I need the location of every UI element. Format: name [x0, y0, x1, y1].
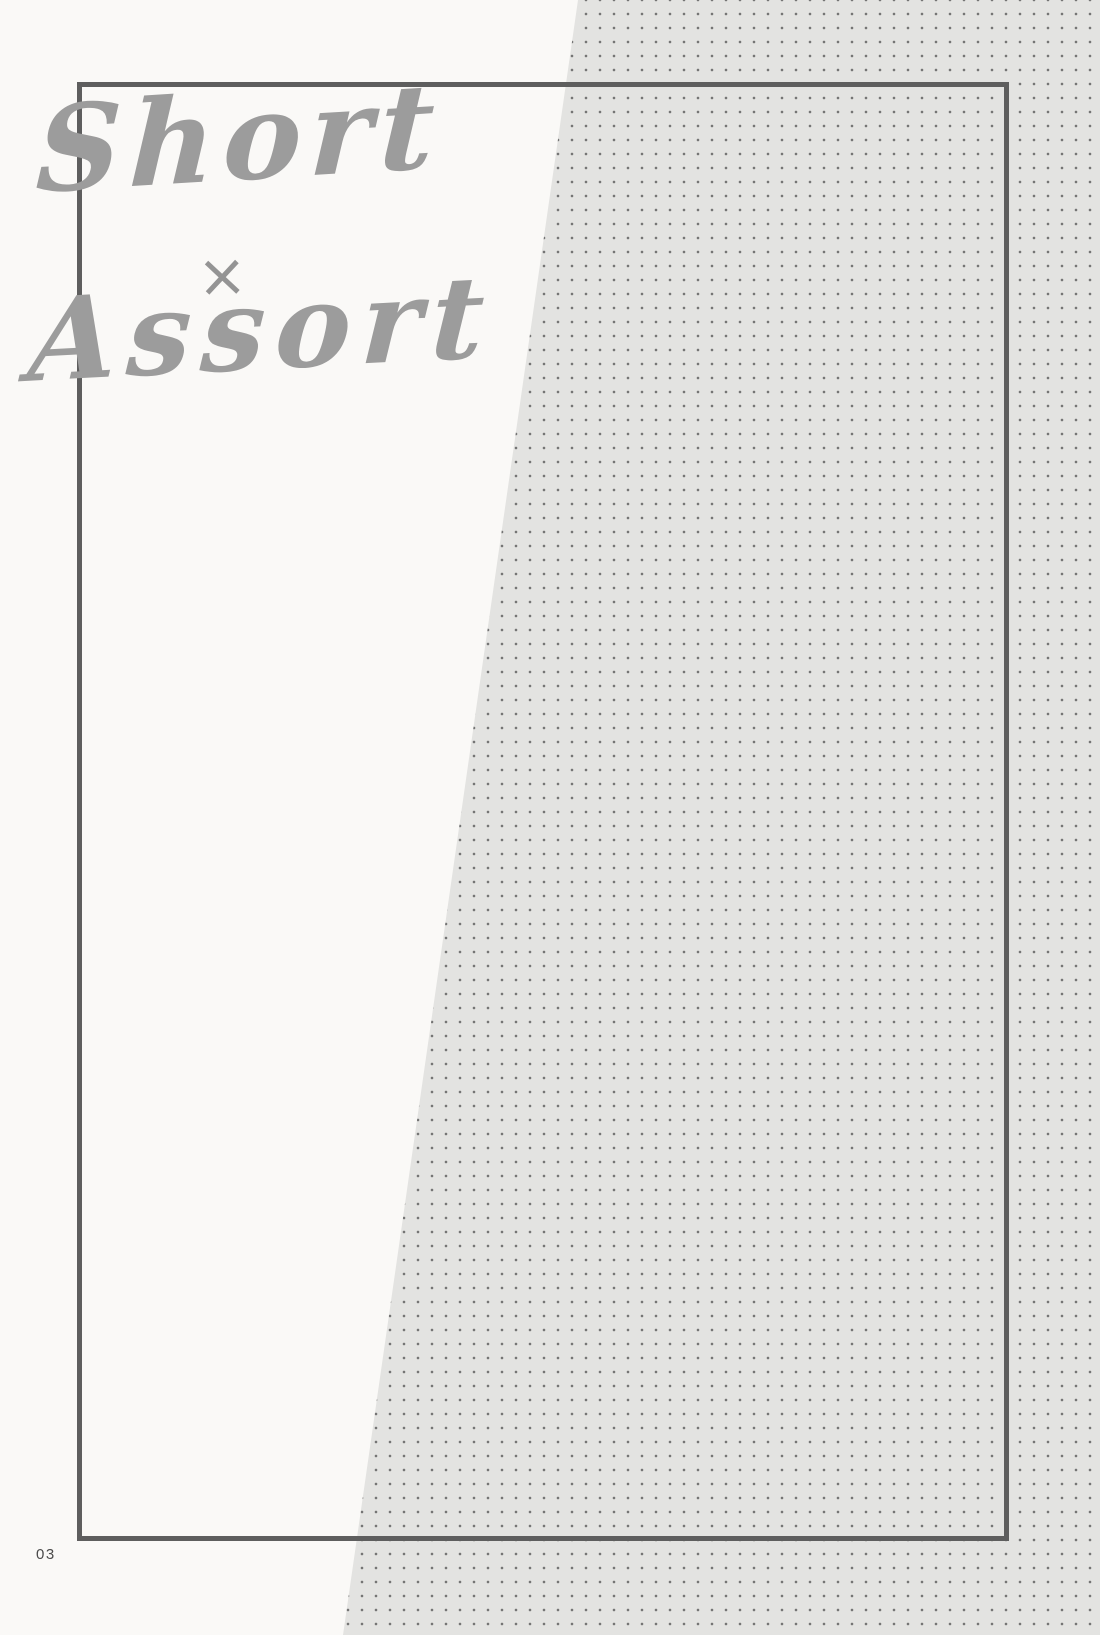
title-word-assort: Assort — [26, 259, 497, 398]
title-word-short: Short — [34, 67, 445, 210]
page-number: 03 — [36, 1546, 56, 1563]
scanned-title-page: Short × Assort 03 — [0, 0, 1100, 1635]
